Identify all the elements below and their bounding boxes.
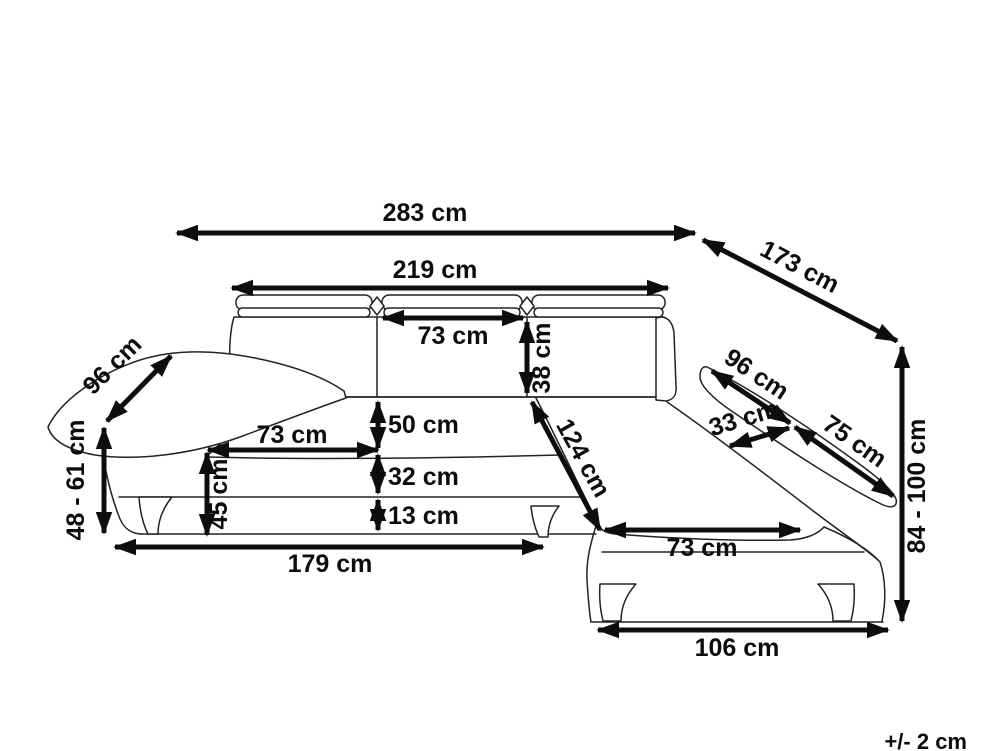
chaise-backrest-panel — [656, 317, 676, 401]
chaise-base-left-edge — [587, 526, 596, 622]
label-seat-front-height: 32 cm — [388, 463, 459, 491]
sofa-leg-front-right — [531, 506, 559, 537]
headrest-lip — [534, 308, 663, 317]
label-headrest-width: 73 cm — [418, 322, 489, 350]
seat-front-edge — [207, 455, 560, 458]
headrest-lip — [238, 308, 370, 317]
diagram-canvas: 283 cm 219 cm 73 cm 38 cm 96 cm 173 cm 4… — [0, 0, 1000, 751]
label-seat-cushion-width: 73 cm — [257, 421, 328, 449]
label-seat-height: 45 cm — [205, 459, 233, 530]
label-backrest-above-seat: 50 cm — [388, 411, 459, 439]
label-headrest-height: 38 cm — [528, 323, 556, 394]
label-overall-height-range: 84 - 100 cm — [903, 419, 931, 554]
tolerance-note: +/- 2 cm — [884, 729, 967, 751]
sofa-leg-front-left — [139, 497, 172, 534]
chaise-leg-left — [600, 584, 636, 621]
label-overall-width: 283 cm — [383, 199, 468, 227]
label-armrest-height-range: 48 - 61 cm — [62, 420, 90, 541]
label-base-width: 179 cm — [288, 550, 373, 578]
chaise-leg-right — [818, 584, 854, 621]
label-back-width: 219 cm — [393, 256, 478, 284]
headrest-rail — [236, 295, 665, 317]
label-chaise-base-depth: 106 cm — [695, 634, 780, 662]
sofa-dimension-diagram: 283 cm 219 cm 73 cm 38 cm 96 cm 173 cm 4… — [0, 0, 1000, 751]
label-base-clearance: 13 cm — [388, 502, 459, 530]
label-chaise-seat-width: 73 cm — [667, 534, 738, 562]
